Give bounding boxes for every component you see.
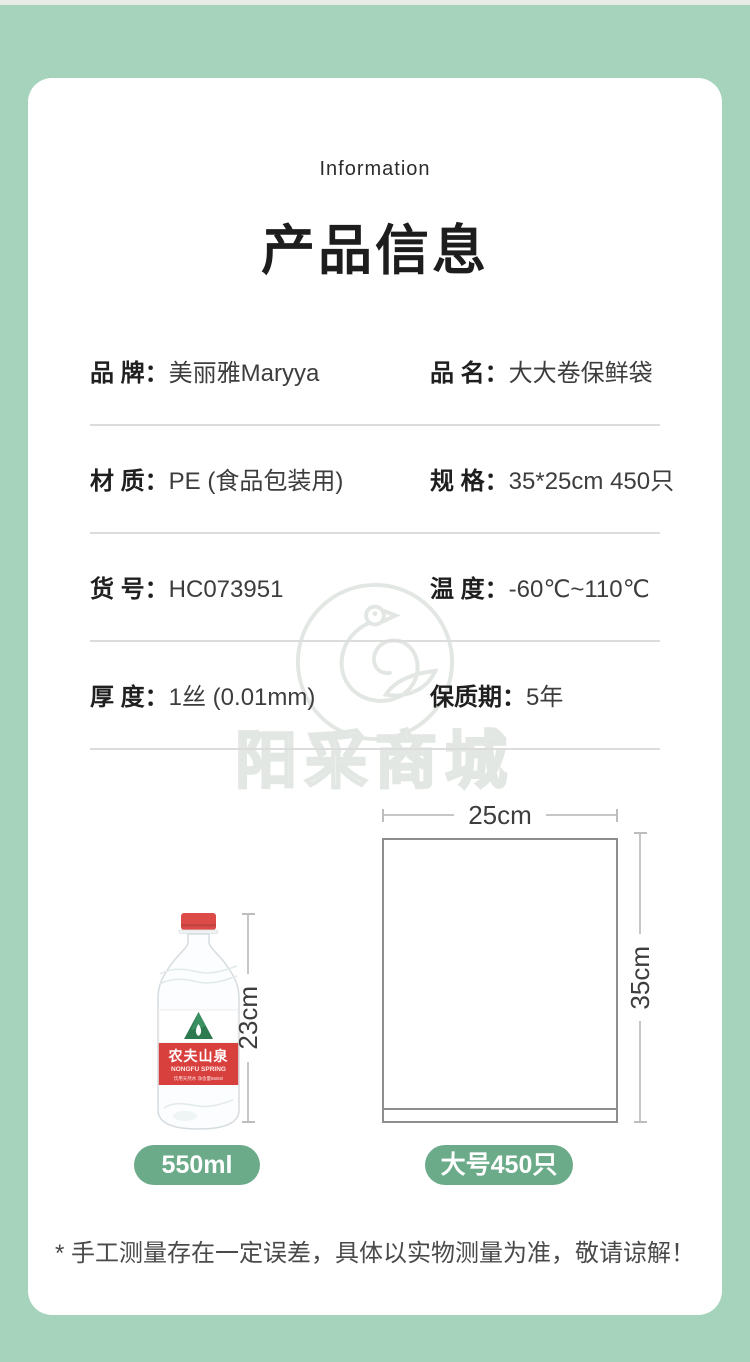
- divider: [90, 748, 660, 750]
- divider: [90, 424, 660, 426]
- top-strip: [0, 0, 750, 5]
- bottle-brand-en: NONGFU SPRING: [171, 1066, 226, 1073]
- spec-label-brand: 品 牌：: [90, 360, 169, 387]
- spec-value-shelf-life: 5年: [526, 684, 563, 711]
- product-info-page: Information 产品信息 阳采商城 品 牌：美丽雅Maryya 品 名：…: [0, 0, 750, 1362]
- spec-label-item-no: 货 号：: [90, 576, 169, 603]
- divider: [90, 640, 660, 642]
- bag-width-dimension: 25cm: [382, 802, 618, 828]
- spec-row-material: 材 质：PE (食品包装用) 规 格：35*25cm 450只: [28, 467, 722, 497]
- spec-value-product-name: 大大卷保鲜袋: [509, 360, 653, 387]
- spec-value-item-no: HC073951: [169, 576, 284, 603]
- bag-bottom-seam: [384, 1108, 616, 1121]
- watermark-text: 阳采商城: [235, 710, 515, 800]
- bag-height-label: 35cm: [625, 934, 656, 1022]
- spec-row-thickness: 厚 度：1丝 (0.01mm) 保质期：5年: [28, 683, 722, 713]
- spec-label-size: 规 格：: [430, 468, 509, 495]
- page-title: 产品信息: [28, 206, 722, 285]
- spec-row-item-no: 货 号：HC073951 温 度：-60℃~110℃: [28, 575, 722, 605]
- bag-width-label: 25cm: [454, 800, 546, 831]
- spec-label-product-name: 品 名：: [430, 360, 509, 387]
- bottle-subline: 饮用天然水 净含量550ml: [174, 1075, 224, 1082]
- product-info-card: Information 产品信息 阳采商城 品 牌：美丽雅Maryya 品 名：…: [28, 78, 722, 1315]
- divider: [90, 532, 660, 534]
- spec-row-brand: 品 牌：美丽雅Maryya 品 名：大大卷保鲜袋: [28, 359, 722, 389]
- bottle-volume-badge: 550ml: [134, 1145, 260, 1185]
- spec-value-size: 35*25cm 450只: [509, 468, 674, 495]
- spec-label-temperature: 温 度：: [430, 576, 509, 603]
- bag-size-badge: 大号450只: [425, 1145, 573, 1185]
- footnote: * 手工测量存在一定误差，具体以实物测量为准，敬请谅解！: [28, 1233, 722, 1268]
- spec-label-thickness: 厚 度：: [90, 684, 169, 711]
- spec-value-brand: 美丽雅Maryya: [169, 360, 320, 387]
- bag-height-dimension: 35cm: [627, 832, 653, 1123]
- spec-label-shelf-life: 保质期：: [430, 684, 526, 711]
- spec-value-material: PE (食品包装用): [169, 468, 344, 495]
- bag-diagram: [382, 838, 618, 1123]
- header-subtitle: Information: [28, 158, 722, 181]
- spec-value-temperature: -60℃~110℃: [509, 576, 650, 603]
- bottle-height-label: 23cm: [233, 974, 264, 1062]
- spec-label-material: 材 质：: [90, 468, 169, 495]
- bottle-brand-cn: 农夫山泉: [168, 1048, 229, 1064]
- spec-value-thickness: 1丝 (0.01mm): [169, 684, 316, 711]
- bottle-height-dimension: 23cm: [235, 913, 261, 1123]
